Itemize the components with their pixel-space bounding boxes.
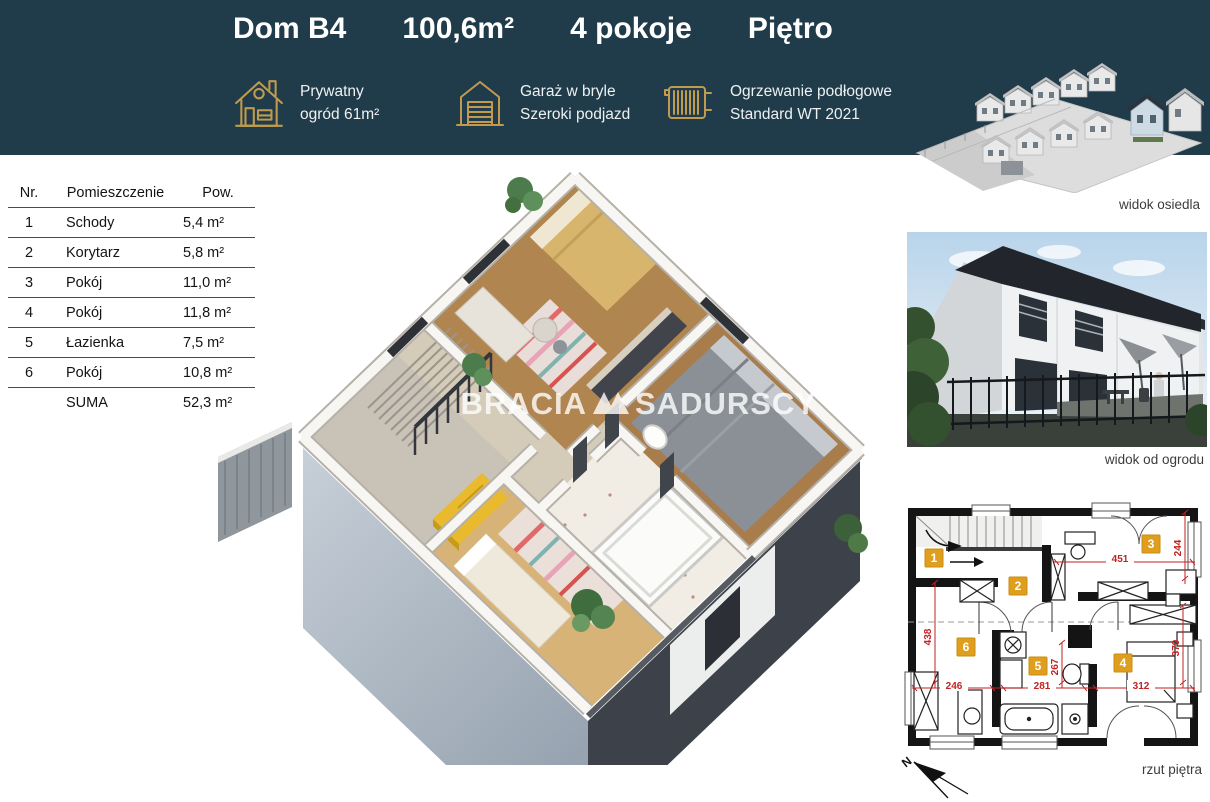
feature-garden: Prywatny ogród 61m² xyxy=(233,76,455,130)
svg-text:SADURSCY: SADURSCY xyxy=(635,386,817,421)
svg-text:1: 1 xyxy=(931,551,938,565)
garden-caption: widok od ogrodu xyxy=(1105,452,1204,467)
svg-text:379: 379 xyxy=(1171,639,1182,656)
house-icon xyxy=(233,76,285,130)
svg-text:BRACIA: BRACIA xyxy=(460,386,587,421)
page-title: Dom B4 100,6m² 4 pokoje Piętro xyxy=(233,12,833,46)
svg-text:451: 451 xyxy=(1112,554,1129,565)
title-room-count: 4 pokoje xyxy=(570,12,692,46)
svg-text:5: 5 xyxy=(1035,659,1042,673)
estate-shed xyxy=(1001,161,1023,175)
svg-text:6: 6 xyxy=(963,640,970,654)
3d-floorplan-render: BRACIA SADURSCY xyxy=(215,165,875,765)
svg-text:267: 267 xyxy=(1050,658,1061,675)
feature-heating-text: Ogrzewanie podłogowe Standard WT 2021 xyxy=(730,80,892,127)
plan-caption: rzut piętra xyxy=(1142,762,1202,777)
2d-floorplan: 246 281 312 451 438 244 379 267 1 2 3 4 … xyxy=(902,492,1204,760)
suma-label: SUMA xyxy=(50,395,181,411)
title-house-name: Dom B4 xyxy=(233,12,346,46)
feature-garden-text: Prywatny ogród 61m² xyxy=(300,80,379,127)
feature-garage-text: Garaż w bryle Szeroki podjazd xyxy=(520,80,630,127)
col-header-nr: Nr. xyxy=(8,185,50,201)
svg-text:4: 4 xyxy=(1120,656,1127,670)
svg-text:244: 244 xyxy=(1173,539,1184,556)
svg-text:2: 2 xyxy=(1015,579,1022,593)
garage-icon xyxy=(455,76,505,130)
title-floor: Piętro xyxy=(748,12,833,46)
feature-garage: Garaż w bryle Szeroki podjazd xyxy=(455,76,663,130)
feature-heating: Ogrzewanie podłogowe Standard WT 2021 xyxy=(663,76,892,130)
bracia-sadurscy-watermark: BRACIA SADURSCY xyxy=(460,386,817,421)
svg-text:3: 3 xyxy=(1148,537,1155,551)
svg-text:438: 438 xyxy=(923,628,934,645)
svg-text:281: 281 xyxy=(1034,681,1051,692)
svg-text:246: 246 xyxy=(946,681,963,692)
north-label: N xyxy=(900,754,914,770)
col-header-name: Pomieszczenie xyxy=(50,185,181,201)
property-card: Dom B4 100,6m² 4 pokoje Piętro xyxy=(0,0,1210,802)
estate-caption: widok osiedla xyxy=(1119,197,1200,212)
estate-render xyxy=(905,53,1210,193)
svg-text:312: 312 xyxy=(1133,681,1150,692)
title-total-area: 100,6m² xyxy=(402,12,514,46)
north-arrow-icon: N xyxy=(900,752,980,802)
radiator-icon xyxy=(663,76,715,130)
feature-list: Prywatny ogród 61m² Garaż w bryle Szerok… xyxy=(233,76,892,130)
estate-right-house xyxy=(1166,88,1204,131)
garden-view-render xyxy=(907,232,1207,447)
terrace xyxy=(218,422,292,542)
estate-highlight-house xyxy=(1128,94,1166,142)
